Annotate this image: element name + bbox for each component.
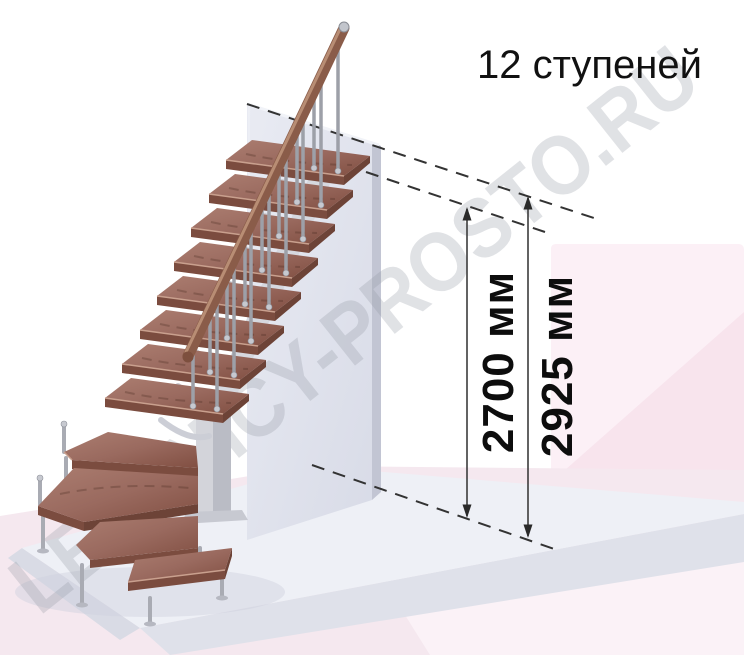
leg-foot bbox=[37, 549, 49, 554]
leg-foot bbox=[76, 603, 88, 608]
staircase-diagram: LESTNICY-PROSTO.RU bbox=[0, 0, 744, 655]
dimension-label-2925: 2925 мм bbox=[533, 275, 582, 457]
connector-ball bbox=[61, 421, 67, 427]
leg-foot bbox=[144, 622, 156, 627]
connector-ball bbox=[37, 475, 43, 481]
handrail-top-cap bbox=[339, 22, 349, 32]
leg-foot bbox=[216, 596, 228, 601]
page-title: 12 ступеней bbox=[477, 43, 702, 87]
handrail-end-ball bbox=[183, 352, 194, 363]
staircase-diagram-page: LESTNICY-PROSTO.RU bbox=[0, 0, 744, 655]
dimension-label-2700: 2700 мм bbox=[474, 271, 523, 453]
